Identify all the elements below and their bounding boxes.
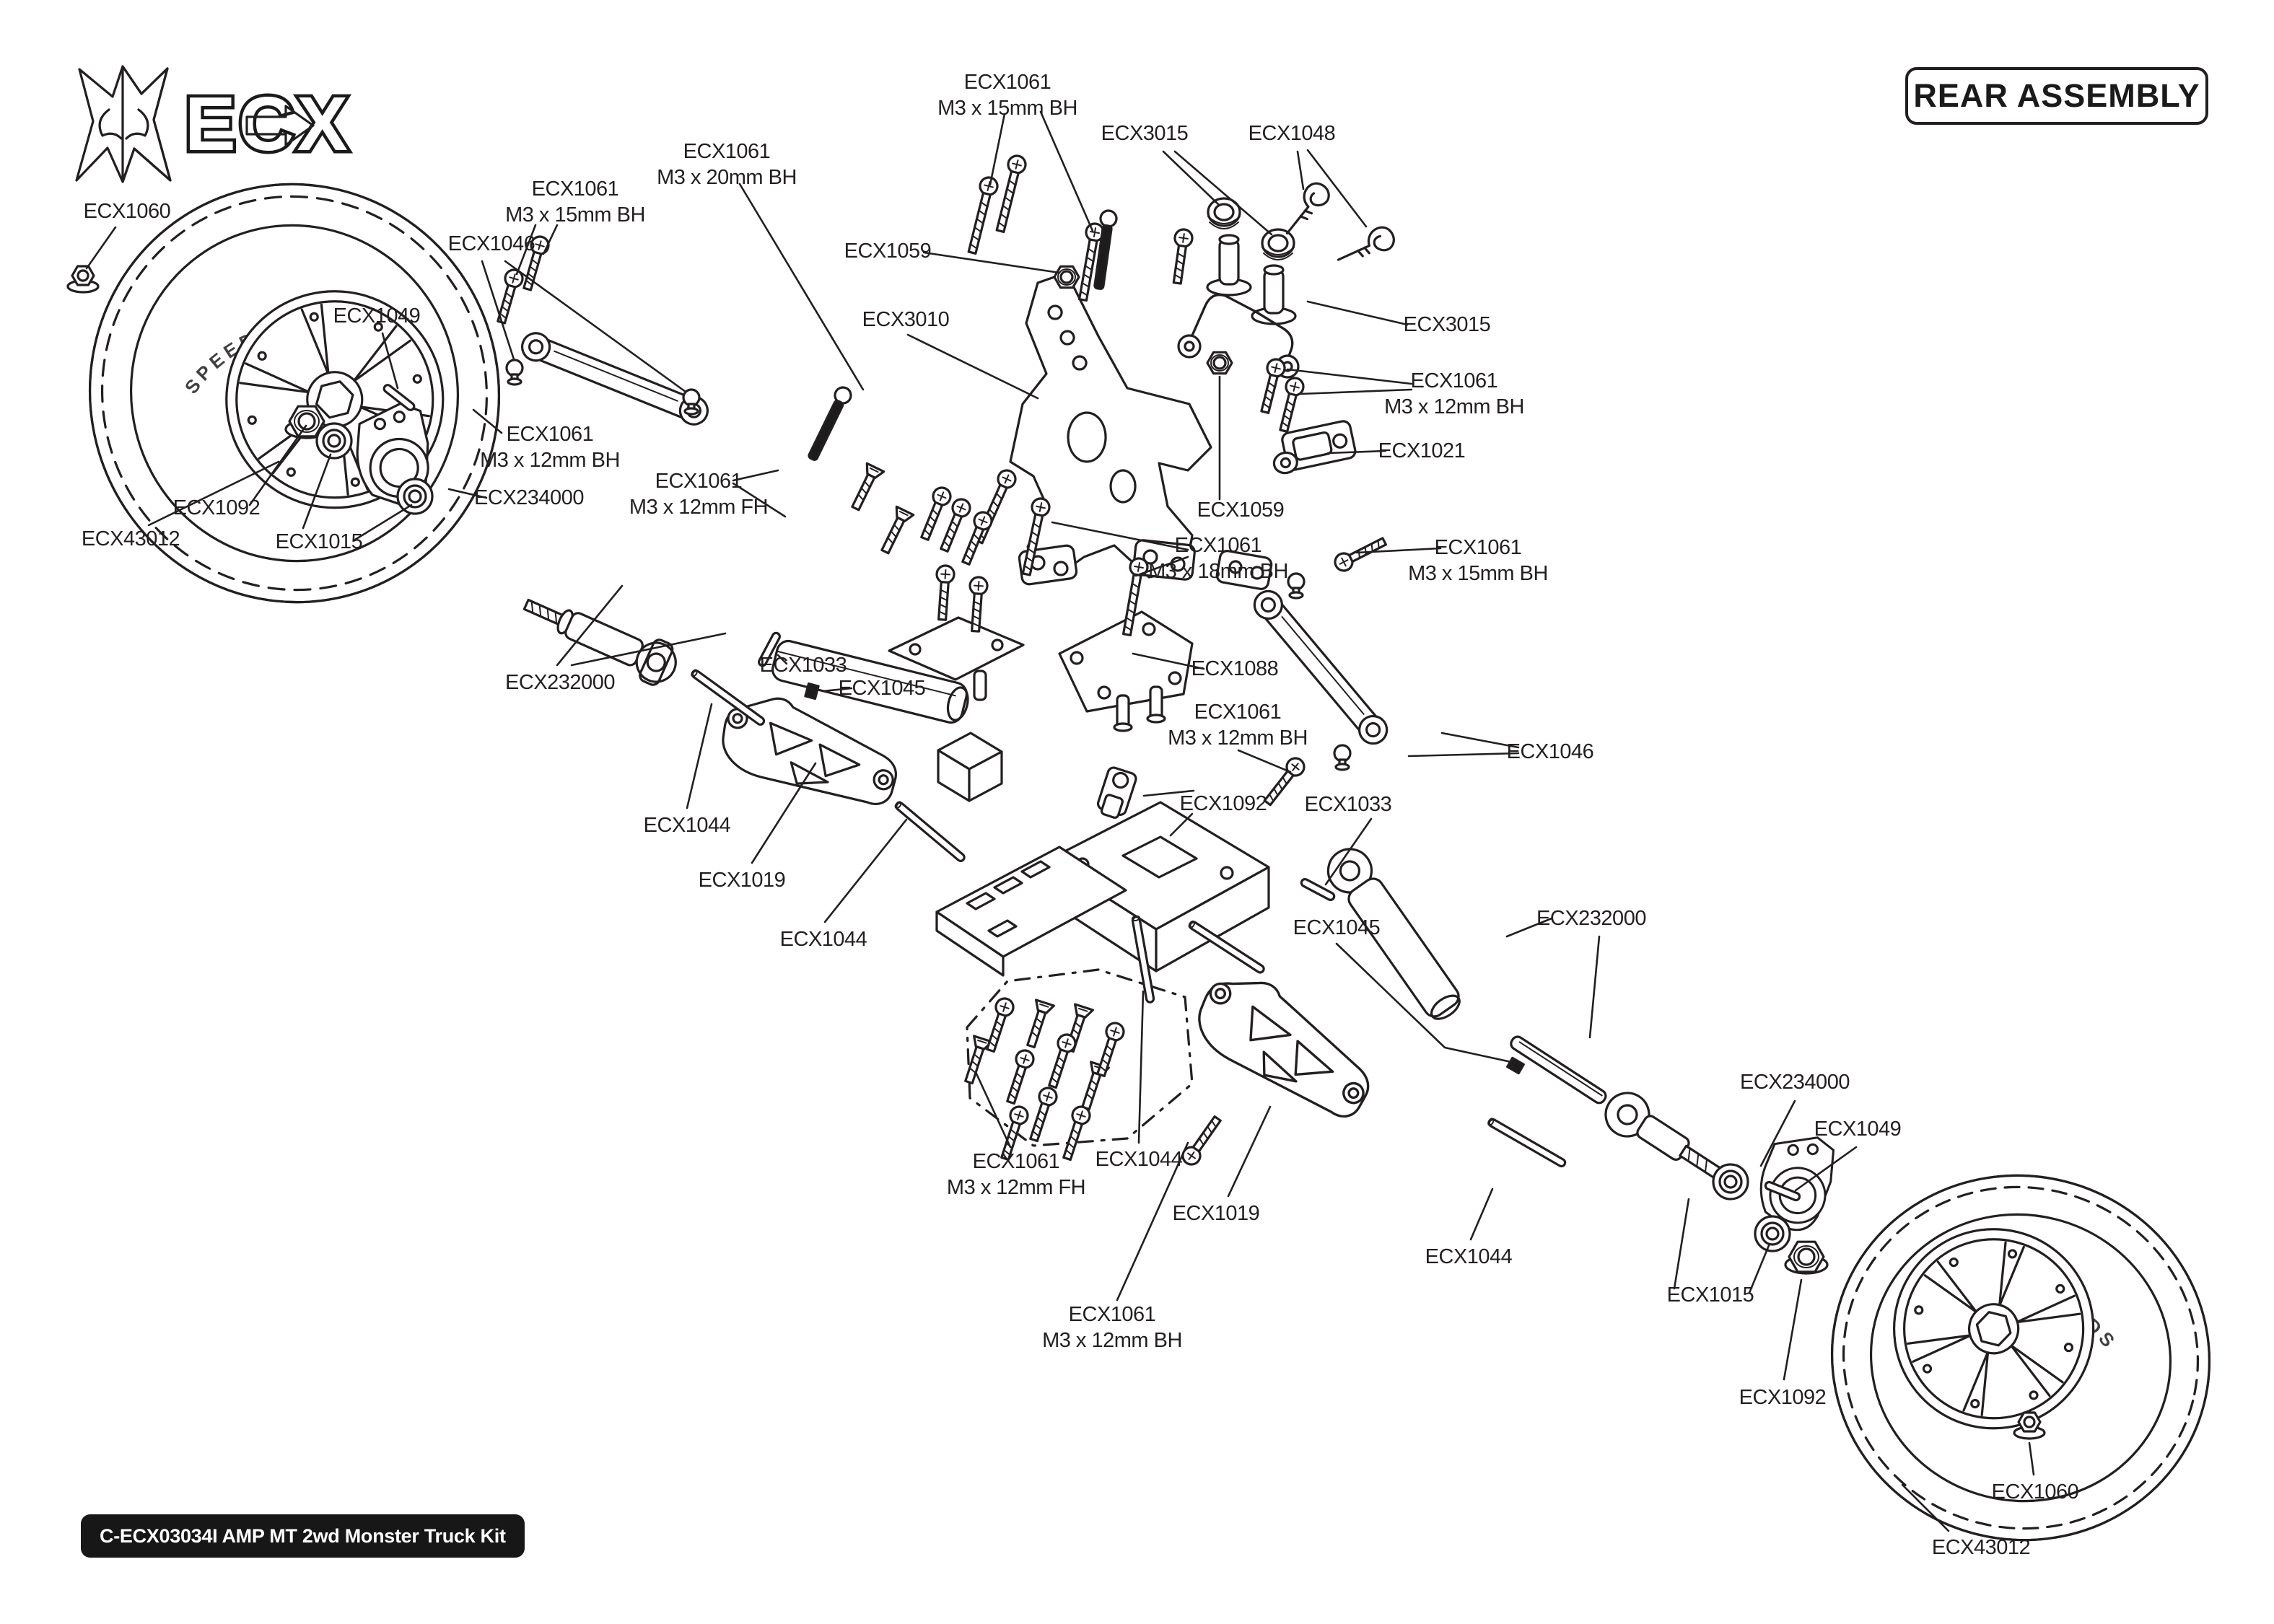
part-label: ECX3015 xyxy=(1101,120,1189,146)
part-label-size: M3 x 15mm BH xyxy=(1408,561,1548,587)
part-label: ECX234000 xyxy=(474,485,584,511)
part-label: ECX1092 xyxy=(1739,1384,1827,1410)
kit-label: C-ECX03034I AMP MT 2wd Monster Truck Kit xyxy=(81,1514,525,1558)
part-label: ECX1061M3 x 15mm BH xyxy=(1408,535,1548,587)
part-label: ECX3015 xyxy=(1404,312,1491,338)
part-label: ECX1061M3 x 15mm BH xyxy=(937,69,1077,121)
leader-line xyxy=(1163,152,1218,204)
part-label: ECX43012 xyxy=(1932,1535,2030,1561)
part-label: ECX234000 xyxy=(1740,1069,1850,1095)
leader-line xyxy=(87,227,115,268)
part-label: ECX1045 xyxy=(1293,915,1381,941)
part-label-size: M3 x 12mm BH xyxy=(1384,394,1524,420)
part-label: ECX1061M3 x 12mm BH xyxy=(1384,368,1524,420)
suspension-arm-right xyxy=(1184,964,1391,1122)
part-label: ECX1033 xyxy=(1305,791,1392,817)
part-label: ECX1088 xyxy=(1191,656,1279,682)
leader-line xyxy=(740,184,863,390)
rear-wheel-right: SPEEDTREADS xyxy=(1793,1136,2248,1580)
leader-line xyxy=(1308,150,1366,227)
leader-line xyxy=(1471,1189,1492,1239)
part-label: ECX1044 xyxy=(1096,1146,1183,1172)
part-label: ECX1061M3 x 12mm BH xyxy=(1168,699,1308,751)
exploded-diagram-art: SPEEDTREADS SPEEDTREADS xyxy=(0,0,2274,1624)
part-label-size: M3 x 12mm BH xyxy=(480,447,620,473)
part-label: ECX1046 xyxy=(1507,739,1594,765)
part-label: ECX1060 xyxy=(84,198,171,224)
part-label: ECX1092 xyxy=(1180,791,1267,817)
driveshaft-right-axle xyxy=(1500,1022,1734,1194)
body-clip xyxy=(1277,180,1336,233)
body-clip xyxy=(1338,219,1396,270)
part-label: ECX232000 xyxy=(1536,905,1646,931)
part-label-size: M3 x 12mm FH xyxy=(947,1175,1085,1201)
camber-link-left xyxy=(518,329,712,429)
leader-line xyxy=(990,114,1005,185)
part-label: ECX1048 xyxy=(1248,120,1336,146)
part-label: ECX1045 xyxy=(839,675,926,701)
part-label: ECX1033 xyxy=(760,652,847,678)
part-label: ECX1061M3 x 15mm BH xyxy=(505,176,645,228)
part-label-size: M3 x 15mm BH xyxy=(937,95,1077,121)
leader-line xyxy=(908,335,1038,398)
leader-line xyxy=(1298,152,1303,189)
diagram-page: SPEEDTREADS SPEEDTREADS xyxy=(0,0,2274,1624)
part-label: ECX1061M3 x 12mm BH xyxy=(480,421,620,473)
leader-line xyxy=(825,820,906,922)
part-label: ECX1046 xyxy=(448,231,535,257)
part-label: ECX1059 xyxy=(1197,497,1285,523)
leader-line xyxy=(1308,302,1407,325)
part-label-size: M3 x 18mm BH xyxy=(1148,558,1288,584)
part-label: ECX1019 xyxy=(699,867,786,893)
part-label: ECX1015 xyxy=(276,529,363,555)
part-label: ECX1021 xyxy=(1378,438,1466,464)
part-label: ECX1049 xyxy=(1814,1116,1902,1142)
brand-logo: ECX xyxy=(76,66,351,182)
part-label: ECX1015 xyxy=(1667,1282,1754,1308)
part-label: ECX1044 xyxy=(1425,1244,1513,1270)
leader-line xyxy=(1784,1280,1801,1379)
part-label: ECX1061M3 x 12mm FH xyxy=(947,1149,1085,1201)
part-label: ECX1059 xyxy=(844,238,932,264)
part-label: ECX1092 xyxy=(173,495,261,521)
leader-line xyxy=(1674,1199,1689,1289)
page-title: REAR ASSEMBLY xyxy=(1905,67,2208,125)
leader-line xyxy=(1139,991,1143,1143)
part-label: ECX43012 xyxy=(82,526,180,552)
part-label-size: M3 x 20mm BH xyxy=(657,164,797,190)
leader-line xyxy=(1238,750,1290,772)
logo-wordmark: ECX xyxy=(185,82,351,167)
part-label: ECX232000 xyxy=(505,670,615,695)
part-label: ECX1044 xyxy=(644,812,731,838)
part-label-size: M3 x 15mm BH xyxy=(505,202,645,228)
part-label-size: M3 x 12mm FH xyxy=(629,494,768,520)
part-label: ECX1049 xyxy=(333,303,421,329)
leader-line xyxy=(976,1072,1010,1147)
leader-line xyxy=(1228,1107,1270,1196)
page-title-text: REAR ASSEMBLY xyxy=(1913,77,2200,115)
part-label-size: M3 x 12mm BH xyxy=(1168,725,1308,751)
part-label-size: M3 x 12mm BH xyxy=(1042,1327,1182,1353)
part-label: ECX1061M3 x 20mm BH xyxy=(657,139,797,190)
leader-line xyxy=(1041,112,1093,231)
part-label: ECX1061M3 x 18mm BH xyxy=(1148,532,1288,584)
leader-line xyxy=(687,704,712,808)
leader-line xyxy=(924,253,1059,273)
part-label: ECX1061M3 x 12mm FH xyxy=(629,468,768,520)
part-label: ECX1061M3 x 12mm BH xyxy=(1042,1302,1182,1353)
part-label: ECX1044 xyxy=(780,926,867,952)
leader-line xyxy=(1590,936,1599,1037)
part-label: ECX1060 xyxy=(1992,1479,2079,1505)
part-label: ECX3010 xyxy=(862,307,950,333)
leader-line xyxy=(1409,753,1518,756)
part-label: ECX1019 xyxy=(1173,1201,1260,1226)
kit-label-text: C-ECX03034I AMP MT 2wd Monster Truck Kit xyxy=(100,1525,506,1548)
